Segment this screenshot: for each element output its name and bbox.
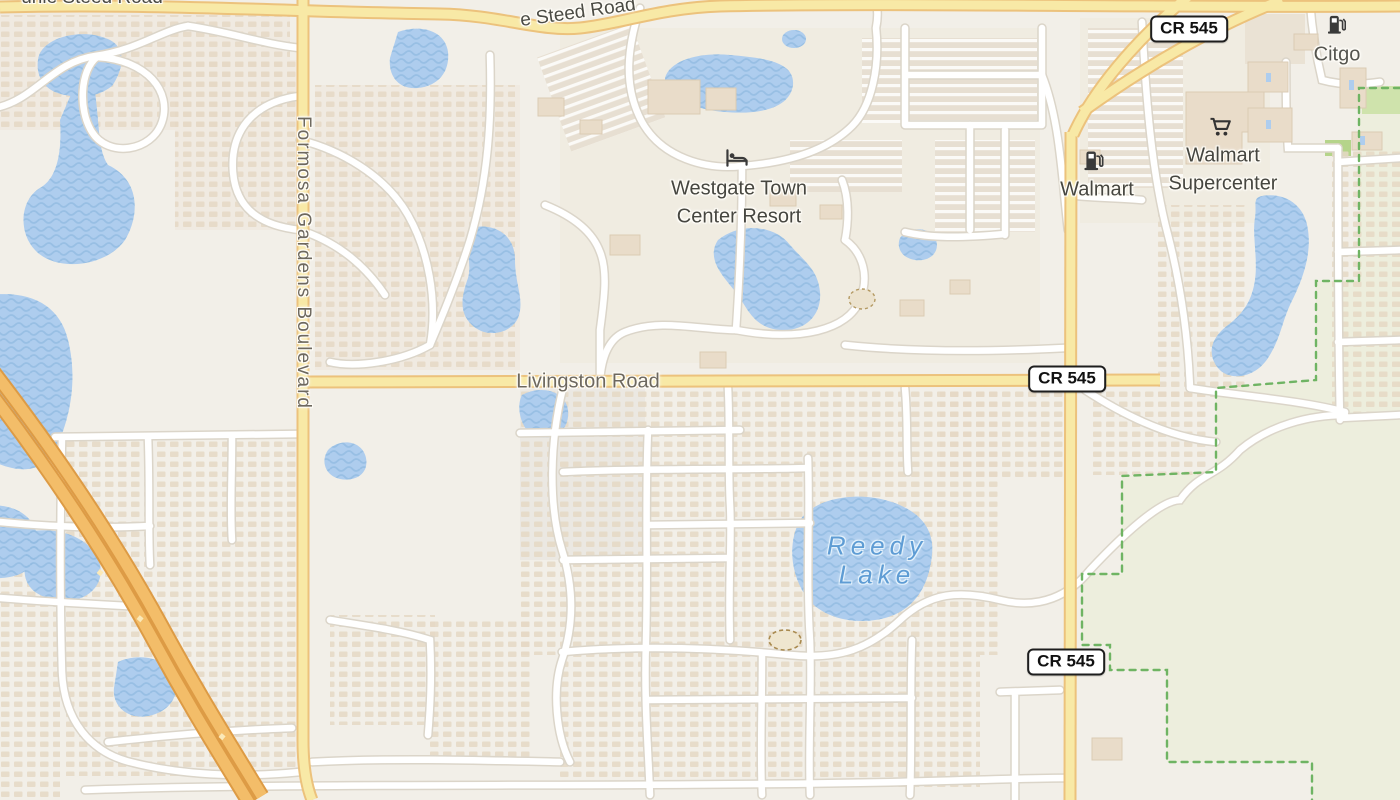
road-label-funie-steed: unie Steed Road xyxy=(21,0,163,9)
green-patch xyxy=(1362,86,1400,114)
poi-label-westgate-line2[interactable]: Center Resort xyxy=(677,206,802,229)
map-page: { "map": { "kind": "street-map", "road_l… xyxy=(0,0,1400,800)
water-label-reedy-lake-line1: Reedy xyxy=(827,531,927,562)
construction-area xyxy=(849,289,875,309)
fuel-pump-icon[interactable] xyxy=(1085,150,1104,171)
road-label-livingston-road: Livingston Road xyxy=(516,371,659,394)
poi-label-westgate-line1[interactable]: Westgate Town xyxy=(671,178,807,201)
map-canvas[interactable] xyxy=(0,0,1400,800)
shopping-cart-icon[interactable] xyxy=(1210,117,1233,138)
road-label-formosa-gardens-boulevard: Formosa Gardens Boulevard xyxy=(292,116,314,410)
route-shield-cr545-middle: CR 545 xyxy=(1028,366,1106,393)
poi-label-walmart-fuel[interactable]: Walmart xyxy=(1060,179,1134,202)
water-label-reedy-lake-line2: Lake xyxy=(839,560,915,591)
construction-area xyxy=(769,630,801,650)
fuel-pump-icon[interactable] xyxy=(1328,14,1346,34)
poi-label-walmart-supercenter-line2[interactable]: Supercenter xyxy=(1169,173,1278,196)
bed-lodging-icon[interactable] xyxy=(725,147,749,168)
poi-label-walmart-supercenter-line1[interactable]: Walmart xyxy=(1186,145,1260,168)
poi-label-citgo[interactable]: Citgo xyxy=(1314,44,1361,67)
route-shield-cr545-top: CR 545 xyxy=(1150,16,1228,43)
route-shield-cr545-bottom: CR 545 xyxy=(1027,649,1105,676)
